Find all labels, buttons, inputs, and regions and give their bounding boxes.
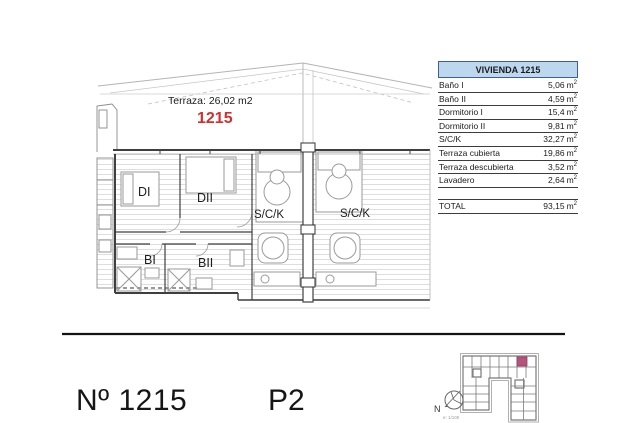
room-label-sck-right: S/C/K xyxy=(340,208,370,220)
table-row-terraza-descubierta: Terraza descubierta 3,52m2 xyxy=(438,161,578,175)
row-label: Terraza cubierta xyxy=(439,148,500,158)
row-value: 2,64m2 xyxy=(548,175,577,185)
key-plan-highlight xyxy=(517,357,527,366)
table-row-dormitorio-i: Dormitorio I 15,4m2 xyxy=(438,106,578,120)
sheet-floor-number: P2 xyxy=(268,384,305,418)
key-plan xyxy=(461,354,539,423)
room-label-bano-ii: BII xyxy=(198,256,213,270)
row-label: Lavadero xyxy=(439,175,474,185)
row-label: Dormitorio I xyxy=(439,107,483,117)
row-value: 9,81m2 xyxy=(548,121,577,131)
row-value: 19,86m2 xyxy=(543,148,577,158)
room-label-dormitorio-ii: DII xyxy=(197,191,213,205)
north-label: N xyxy=(434,404,441,414)
table-row-sck: S/C/K 32,27m2 xyxy=(438,133,578,147)
table-row-bano-i: Baño I 5,06m2 xyxy=(438,79,578,93)
areas-table: VIVIENDA 1215 Baño I 5,06m2 Baño II 4,59… xyxy=(438,61,578,214)
sheet-unit-number: Nº 1215 xyxy=(76,384,187,418)
row-label: Baño I xyxy=(439,80,464,90)
row-label: Terraza descubierta xyxy=(439,162,514,172)
row-label: Baño II xyxy=(439,94,466,104)
roof-lines xyxy=(98,63,432,150)
row-value: 15,4m2 xyxy=(548,107,577,117)
total-label: TOTAL xyxy=(439,201,466,211)
row-value: 3,52m2 xyxy=(548,162,577,172)
room-label-dormitorio-i: DI xyxy=(138,185,151,199)
table-row-dormitorio-ii: Dormitorio II 9,81m2 xyxy=(438,120,578,134)
row-value: 5,06m2 xyxy=(548,80,577,90)
row-value: 4,59m2 xyxy=(548,94,577,104)
row-value: 32,27m2 xyxy=(543,134,577,144)
table-row-terraza-cubierta: Terraza cubierta 19,86m2 xyxy=(438,147,578,161)
room-label-bano-i: BI xyxy=(144,253,156,267)
row-label: S/C/K xyxy=(439,134,461,144)
keyplan-scale-label: e: 1/100 xyxy=(443,415,460,420)
kitchen-counter-right xyxy=(316,272,376,286)
unit-number-label: 1215 xyxy=(197,110,233,127)
table-row-bano-ii: Baño II 4,59m2 xyxy=(438,93,578,107)
table-title: VIVIENDA 1215 xyxy=(438,61,578,78)
table-row-total: TOTAL 93,15m2 xyxy=(438,199,578,214)
row-label: Dormitorio II xyxy=(439,121,485,131)
terrace-area-label: Terraza: 26,02 m2 xyxy=(168,95,253,107)
room-label-sck-left: S/C/K xyxy=(254,209,284,221)
table-row-lavadero: Lavadero 2,64m2 xyxy=(438,174,578,188)
plan-sheet: Terraza: 26,02 m2 1215 DI DII BI BII S/C… xyxy=(0,0,630,423)
total-value: 93,15m2 xyxy=(543,201,577,211)
